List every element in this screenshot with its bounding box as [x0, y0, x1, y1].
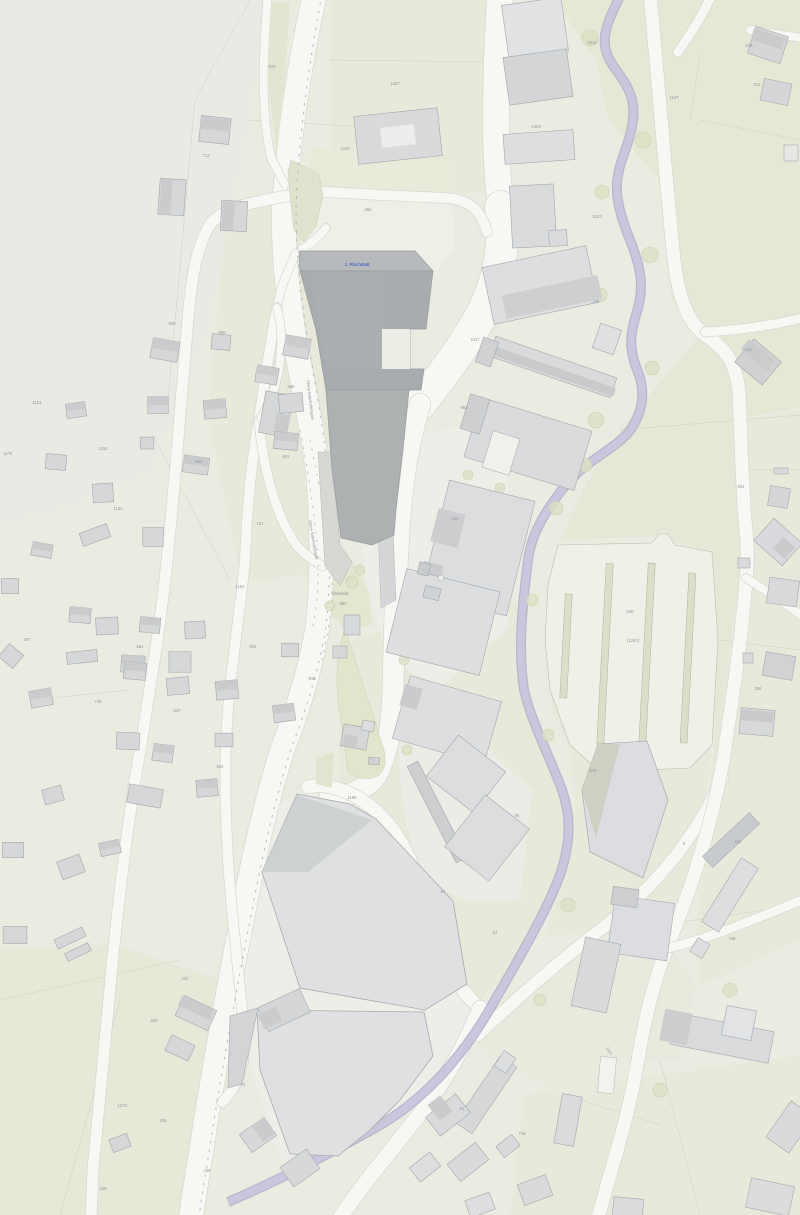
svg-text:1153: 1153 [98, 446, 108, 451]
svg-text:601: 601 [738, 484, 746, 489]
svg-text:155: 155 [160, 1118, 168, 1123]
svg-text:98: 98 [515, 813, 520, 818]
svg-text:570: 570 [590, 768, 598, 773]
svg-text:1. Rischstatt: 1. Rischstatt [345, 262, 371, 267]
svg-text:1018: 1018 [587, 40, 597, 45]
svg-text:612: 612 [196, 459, 204, 464]
svg-text:54: 54 [493, 930, 498, 935]
svg-text:748: 748 [729, 936, 737, 941]
svg-text:540: 540 [627, 609, 635, 614]
svg-text:263: 263 [151, 1018, 159, 1023]
svg-text:721: 721 [257, 521, 265, 526]
svg-text:64: 64 [441, 889, 446, 894]
svg-text:1220: 1220 [340, 146, 350, 151]
svg-text:689: 689 [219, 330, 227, 335]
svg-text:1175: 1175 [3, 451, 13, 456]
svg-text:1147: 1147 [669, 95, 679, 100]
svg-text:213: 213 [452, 516, 460, 521]
svg-text:691: 691 [283, 454, 291, 459]
svg-text:438: 438 [204, 1168, 212, 1173]
svg-text:407: 407 [24, 637, 32, 642]
svg-text:1166: 1166 [347, 795, 357, 800]
svg-text:963: 963 [340, 601, 348, 606]
svg-text:974: 974 [269, 64, 277, 69]
svg-text:1273: 1273 [117, 1103, 127, 1108]
svg-text:284: 284 [365, 207, 373, 212]
svg-text:647: 647 [174, 708, 182, 713]
svg-text:428: 428 [100, 1186, 108, 1191]
svg-text:1017: 1017 [470, 337, 480, 342]
svg-text:621: 621 [754, 82, 762, 87]
svg-text:1162: 1162 [235, 584, 245, 589]
svg-text:61: 61 [460, 1106, 465, 1111]
svg-text:Gleisfeld: Gleisfeld [332, 591, 349, 596]
svg-text:713: 713 [745, 347, 753, 352]
svg-text:205: 205 [593, 299, 601, 304]
svg-text:679: 679 [746, 43, 754, 48]
svg-text:712: 712 [203, 153, 211, 158]
svg-text:665: 665 [288, 384, 296, 389]
svg-text:602: 602 [217, 764, 225, 769]
svg-text:634: 634 [735, 839, 743, 844]
svg-text:306: 306 [755, 686, 763, 691]
svg-text:232: 232 [182, 976, 190, 981]
svg-text:983: 983 [461, 405, 469, 410]
svg-text:861: 861 [137, 644, 145, 649]
svg-text:745: 745 [95, 699, 103, 704]
svg-text:836: 836 [250, 644, 258, 649]
svg-text:908: 908 [169, 321, 177, 326]
svg-text:1003: 1003 [531, 124, 541, 129]
svg-text:1151: 1151 [32, 400, 42, 405]
svg-text:74: 74 [241, 1082, 246, 1087]
svg-text:1033: 1033 [592, 214, 602, 219]
svg-text:1134: 1134 [113, 506, 123, 511]
svg-text:718: 718 [519, 1131, 527, 1136]
svg-text:(1263): (1263) [627, 638, 640, 643]
svg-text:918: 918 [309, 676, 317, 681]
svg-text:1207: 1207 [390, 81, 400, 86]
